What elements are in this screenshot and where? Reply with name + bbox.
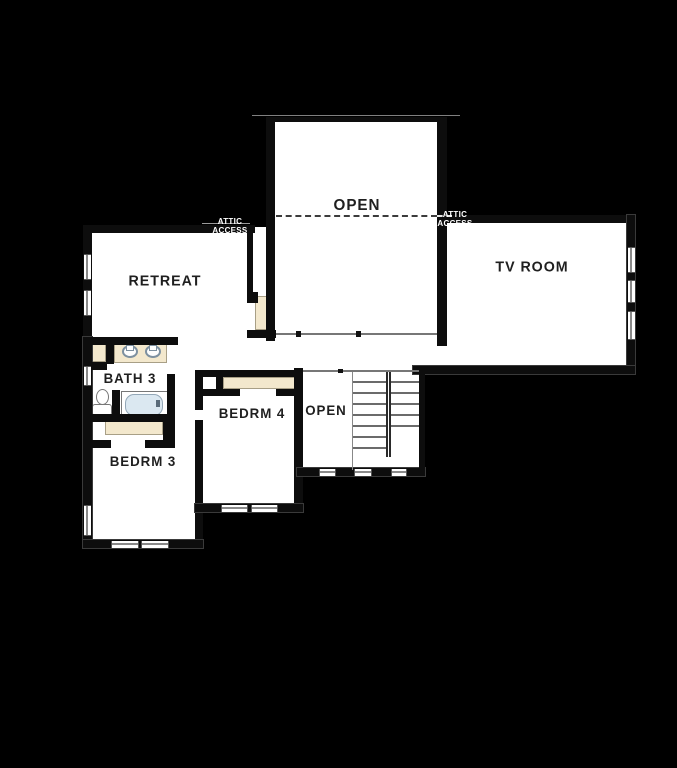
window <box>84 290 91 316</box>
window <box>221 505 248 512</box>
window <box>111 541 139 548</box>
wall <box>145 440 175 448</box>
attic-access-label-left: ATTIC ACCESS <box>209 217 251 235</box>
room-label-open-stairwell: OPEN <box>305 402 347 418</box>
window <box>141 541 169 548</box>
room-label-tv-room: TV ROOM <box>495 259 568 276</box>
stair-tread <box>353 447 386 449</box>
window <box>628 247 635 273</box>
attic-access-line2: ACCESS <box>209 226 251 235</box>
room-label-bedroom-3: BEDRM 3 <box>110 453 177 469</box>
plan-top-line <box>252 115 460 116</box>
stair-tread <box>391 403 419 405</box>
window <box>391 469 407 476</box>
wall <box>247 330 276 338</box>
wall <box>112 390 120 416</box>
stair-tread <box>353 436 386 438</box>
wall <box>195 370 302 377</box>
stair-tread <box>353 381 386 383</box>
wall <box>413 366 635 374</box>
room-label-retreat: RETREAT <box>129 273 202 290</box>
wall <box>83 337 178 345</box>
window <box>319 469 336 476</box>
window <box>84 366 91 386</box>
stair-tread <box>391 381 419 383</box>
stair-tread <box>353 425 386 427</box>
wall <box>83 225 92 345</box>
attic-dashed-line <box>276 215 437 217</box>
room-label-open-upper: OPEN <box>334 197 381 215</box>
floor-hallway <box>175 337 447 372</box>
floor-tv-room <box>440 217 633 373</box>
stair-tread <box>391 392 419 394</box>
wall <box>195 420 203 548</box>
stair-edge-line <box>352 372 353 470</box>
wall <box>247 230 253 296</box>
attic-access-label-right: ATTIC ACCESS <box>434 210 476 228</box>
wall <box>437 117 447 346</box>
wall <box>247 292 258 303</box>
wall <box>419 368 425 476</box>
stair-tread <box>353 414 386 416</box>
window <box>251 505 278 512</box>
wall <box>268 117 447 122</box>
room-label-bedroom-4: BEDRM 4 <box>219 405 286 421</box>
wall <box>83 440 111 448</box>
stair-tread <box>391 425 419 427</box>
sink-icon <box>122 345 138 358</box>
wall <box>195 389 240 396</box>
stair-tread <box>391 414 419 416</box>
attic-access-line1: ATTIC <box>434 210 476 219</box>
bedroom4-closet-shelf <box>223 377 298 389</box>
window <box>628 311 635 340</box>
wall <box>83 414 175 422</box>
floor-plan-canvas: OPEN TV ROOM RETREAT BATH 3 BEDRM 4 OPEN… <box>0 0 677 768</box>
stair-tread <box>353 392 386 394</box>
stair-tick <box>338 369 343 373</box>
railing-tick <box>356 331 361 337</box>
floor-stairwell <box>300 368 422 474</box>
wall <box>195 504 303 512</box>
railing-tick <box>296 331 301 337</box>
wall <box>294 368 303 512</box>
window <box>354 469 372 476</box>
attic-access-line2: ACCESS <box>434 219 476 228</box>
window <box>628 280 635 303</box>
sink-icon <box>145 345 161 358</box>
floor-open-upper <box>270 118 443 338</box>
bathtub-drain <box>156 400 160 407</box>
attic-access-line1: ATTIC <box>209 217 251 226</box>
toilet-fixture <box>96 389 109 405</box>
wall <box>266 117 275 341</box>
window <box>84 505 91 536</box>
stair-top-line <box>303 370 419 372</box>
window <box>84 254 91 280</box>
room-label-bath-3: BATH 3 <box>104 370 157 386</box>
wall <box>106 342 114 364</box>
stair-tread <box>353 403 386 405</box>
bedroom3-closet-shelf <box>105 421 163 435</box>
